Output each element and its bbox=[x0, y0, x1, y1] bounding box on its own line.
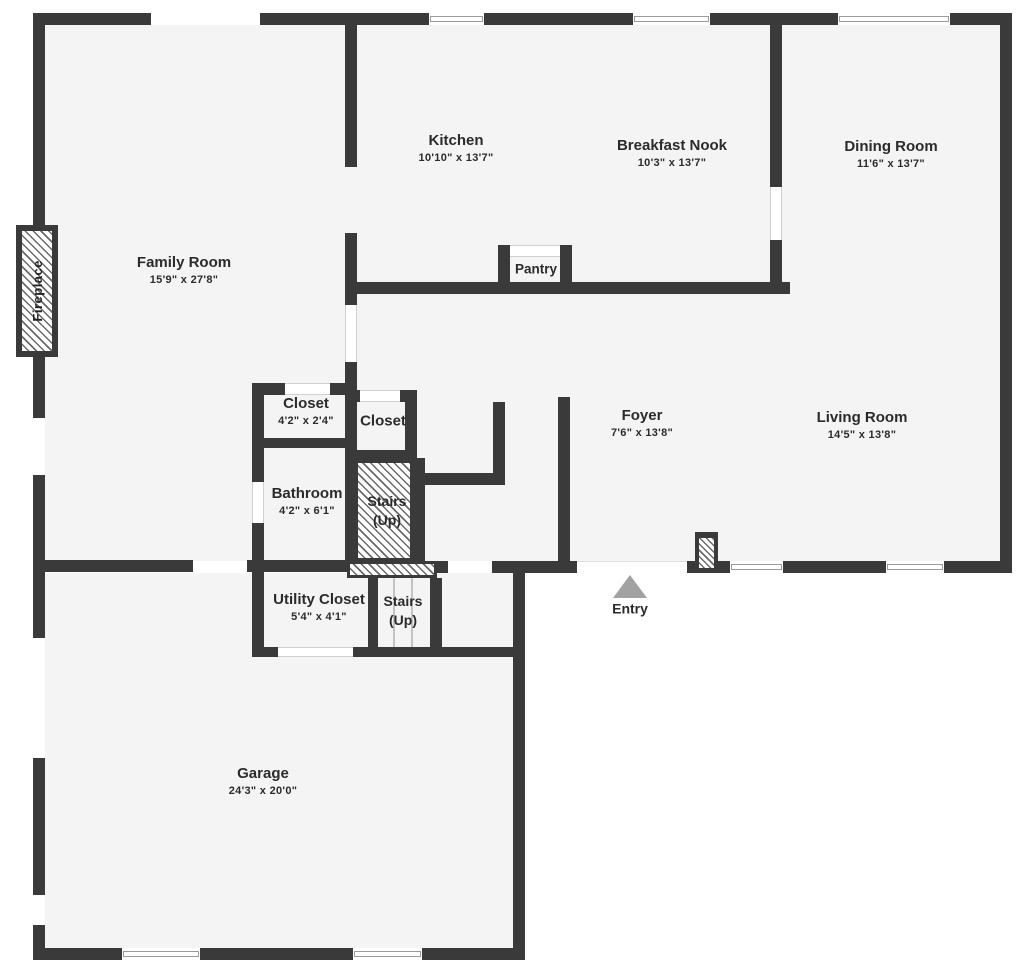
room-dims: 4'2" x 6'1" bbox=[272, 504, 343, 519]
wall-garage-top bbox=[33, 560, 193, 572]
wall-garage-right bbox=[513, 561, 525, 960]
room-label-dining-room: Dining Room 11'6" x 13'7" bbox=[844, 138, 937, 172]
window-garage-bottom bbox=[353, 948, 422, 960]
wall-left bbox=[33, 13, 45, 225]
window-garage-bottom bbox=[122, 948, 200, 960]
room-name: Living Room bbox=[817, 409, 908, 428]
room-name: Pantry bbox=[515, 262, 557, 279]
garage-floor-area bbox=[45, 573, 513, 948]
room-label-living-room: Living Room 14'5" x 13'8" bbox=[817, 409, 908, 443]
room-label-garage: Garage 24'3" x 20'0" bbox=[229, 765, 298, 799]
marker-name: Entry bbox=[612, 600, 648, 618]
room-dims: 7'6" x 13'8" bbox=[611, 426, 673, 441]
stair-landing bbox=[347, 561, 437, 578]
room-label-utility-closet: Utility Closet 5'4" x 4'1" bbox=[273, 591, 365, 625]
room-name: Breakfast Nook bbox=[617, 137, 727, 156]
room-name: Dining Room bbox=[844, 138, 937, 157]
room-label-bathroom: Bathroom 4'2" x 6'1" bbox=[272, 485, 343, 519]
wall-stairs-lower-left bbox=[368, 578, 378, 647]
wall-bath-left bbox=[252, 383, 264, 482]
room-name: Stairs bbox=[368, 493, 407, 511]
door-bathroom bbox=[252, 482, 264, 523]
pass-nook-dining bbox=[770, 187, 782, 240]
window-living-bottom bbox=[730, 561, 783, 573]
room-name: Closet bbox=[278, 395, 334, 414]
fireplace: Fireplace bbox=[16, 225, 58, 357]
wall-utility-bottom bbox=[252, 647, 278, 657]
window-dining-top bbox=[838, 13, 950, 25]
room-label-kitchen: Kitchen 10'10" x 13'7" bbox=[419, 132, 494, 166]
wall-garage-bottom bbox=[33, 948, 122, 960]
room-name: Family Room bbox=[137, 254, 231, 273]
room-label-family-room: Family Room 15'9" x 27'8" bbox=[137, 254, 231, 288]
wall-utility-bottom bbox=[353, 647, 520, 657]
entry-arrow-icon bbox=[613, 575, 647, 598]
wall-bottom-main bbox=[783, 561, 886, 573]
wall-top bbox=[33, 13, 151, 25]
fireplace-label: Fireplace bbox=[30, 260, 45, 322]
room-name: Closet bbox=[360, 413, 406, 432]
room-dims: 4'2" x 2'4" bbox=[278, 414, 334, 429]
wall-stairs-lower-right bbox=[430, 578, 442, 657]
door-utility bbox=[278, 647, 353, 657]
wall-bath-left bbox=[252, 523, 264, 657]
wall-pantry-left bbox=[498, 245, 510, 294]
wall-left-garage bbox=[33, 758, 45, 895]
window-kitchen-top bbox=[429, 13, 484, 25]
entry-door-opening bbox=[577, 561, 687, 573]
room-label-closet-main: Closet 4'2" x 2'4" bbox=[278, 395, 334, 429]
door-family-hall bbox=[345, 305, 357, 362]
wall-pantry-right bbox=[560, 245, 572, 294]
door-closet-hall bbox=[360, 390, 400, 402]
room-name: Bathroom bbox=[272, 485, 343, 504]
room-label-stairs-lower: Stairs (Up) bbox=[384, 593, 423, 629]
room-label-stairs-upper: Stairs (Up) bbox=[368, 493, 407, 529]
floor-plan: Fireplace bbox=[0, 0, 1024, 960]
wall-top bbox=[484, 13, 633, 25]
wall-hall-divider bbox=[345, 233, 357, 305]
wall-left bbox=[33, 357, 45, 418]
wall-left bbox=[33, 475, 45, 570]
wall-kitchen-divider bbox=[345, 13, 357, 167]
door-pantry bbox=[510, 245, 560, 257]
wall-stairs-right bbox=[413, 458, 425, 561]
room-label-closet-hall: Closet bbox=[360, 413, 406, 432]
room-name: Foyer bbox=[611, 407, 673, 426]
room-dims: 11'6" x 13'7" bbox=[844, 157, 937, 172]
wall-garage-bottom bbox=[200, 948, 353, 960]
room-dims: 14'5" x 13'8" bbox=[817, 428, 908, 443]
entry-door-jamb bbox=[695, 532, 718, 573]
room-dims: 10'10" x 13'7" bbox=[419, 151, 494, 166]
door-foyer-garage bbox=[448, 561, 492, 573]
wall-closet2-top bbox=[345, 390, 360, 402]
wall-nook-dining bbox=[770, 13, 782, 187]
wall-closet-top bbox=[330, 383, 345, 395]
wall-garage-bottom bbox=[422, 948, 525, 960]
room-dims: 5'4" x 4'1" bbox=[273, 610, 365, 625]
room-name: Stairs bbox=[384, 593, 423, 611]
room-dims: (Up) bbox=[368, 510, 407, 529]
room-name: Kitchen bbox=[419, 132, 494, 151]
room-label-breakfast-nook: Breakfast Nook 10'3" x 13'7" bbox=[617, 137, 727, 171]
wall-bath-top bbox=[252, 438, 357, 448]
room-dims: 24'3" x 20'0" bbox=[229, 784, 298, 799]
window-living-bottom bbox=[886, 561, 944, 573]
wall-stairs-top bbox=[353, 450, 417, 460]
door-closet-main bbox=[285, 383, 330, 395]
window-nook-top bbox=[633, 13, 710, 25]
room-dims: 10'3" x 13'7" bbox=[617, 156, 727, 171]
entry-label: Entry bbox=[612, 600, 648, 618]
wall-right bbox=[1000, 13, 1012, 573]
wall-bottom-main bbox=[437, 561, 448, 573]
room-label-foyer: Foyer 7'6" x 13'8" bbox=[611, 407, 673, 441]
wall-nook-dining bbox=[770, 240, 782, 294]
room-name: Utility Closet bbox=[273, 591, 365, 610]
wall-bottom-main bbox=[944, 561, 1012, 573]
room-dims: 15'9" x 27'8" bbox=[137, 273, 231, 288]
room-label-pantry: Pantry bbox=[515, 262, 557, 279]
wall-left-garage bbox=[33, 570, 45, 638]
room-dims: (Up) bbox=[384, 610, 423, 629]
room-name: Garage bbox=[229, 765, 298, 784]
wall-foyer-left bbox=[558, 397, 570, 573]
